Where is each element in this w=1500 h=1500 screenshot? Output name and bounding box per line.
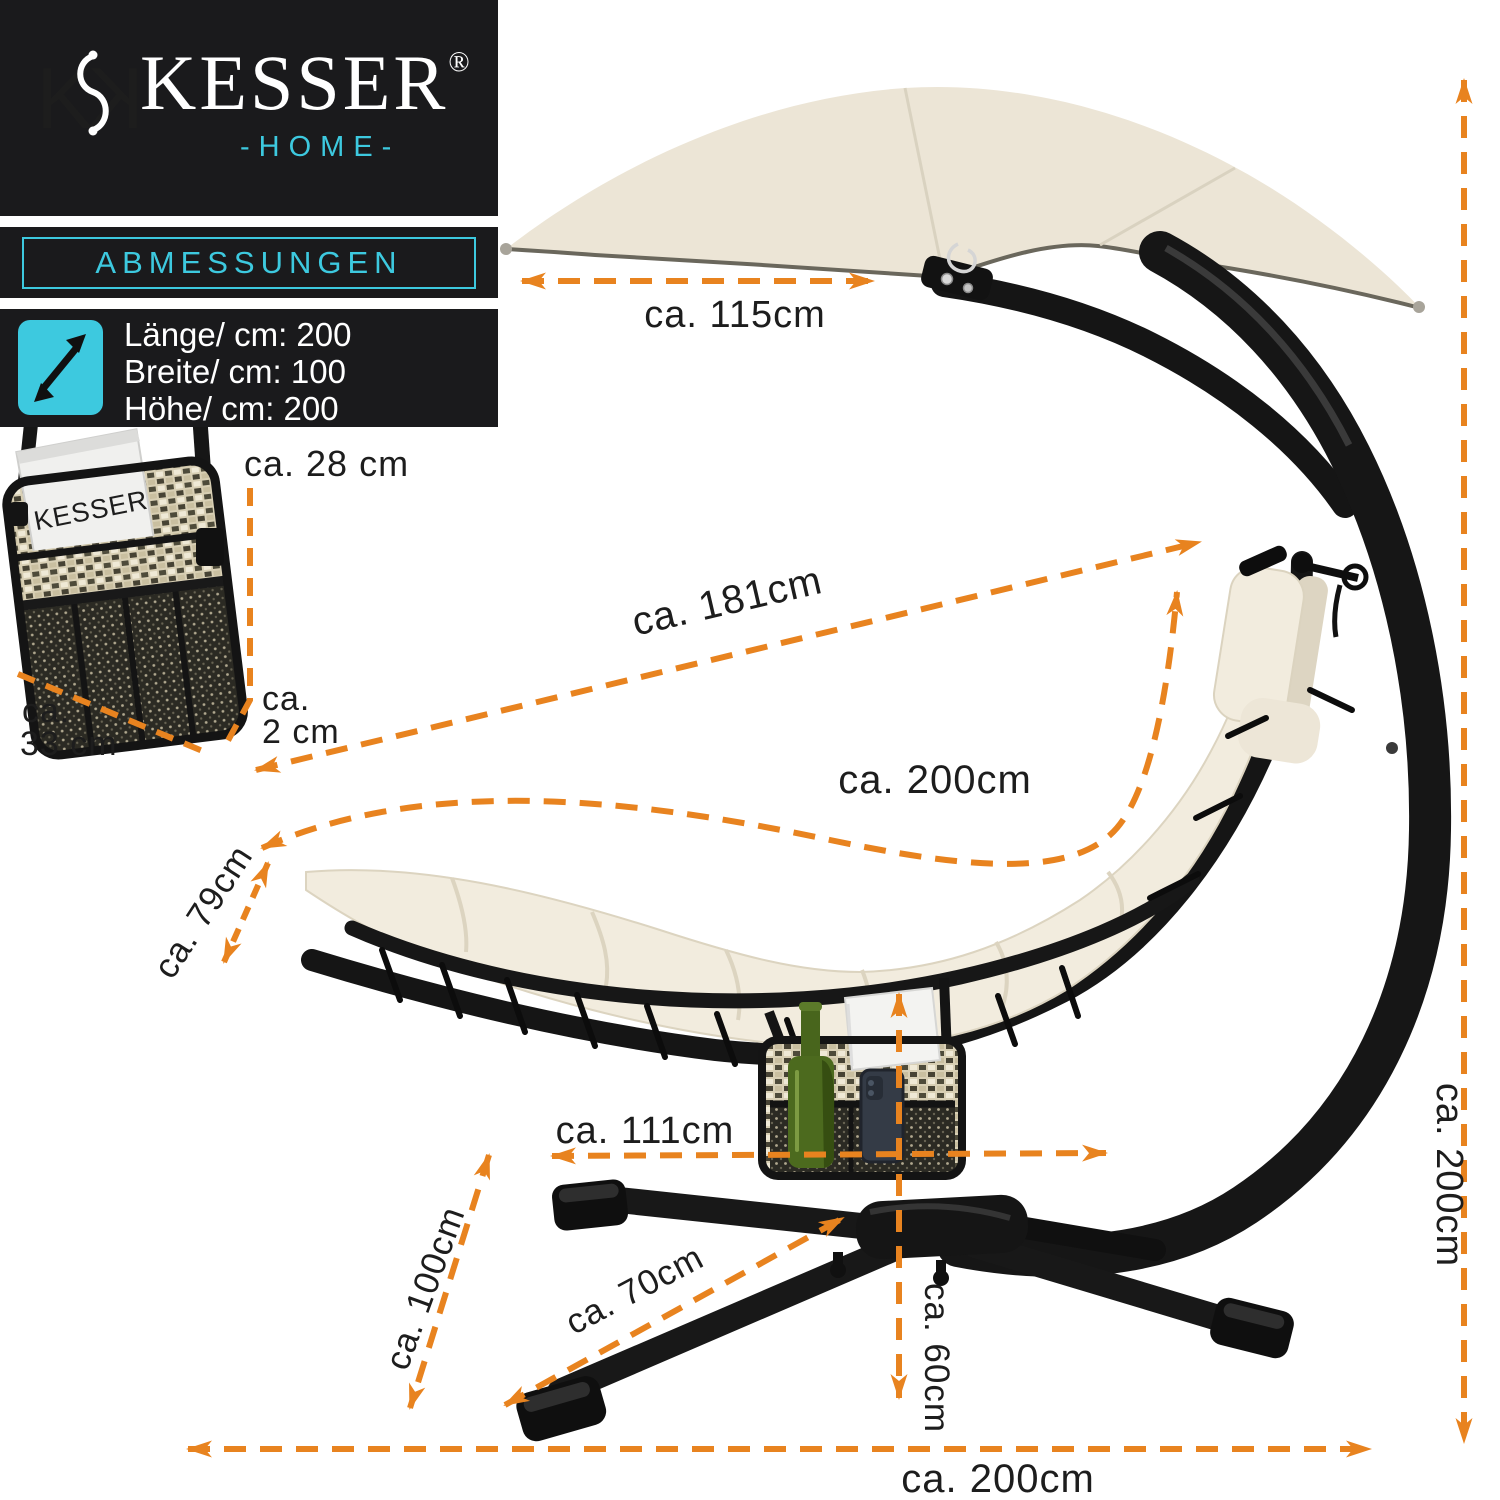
- section-title: ABMESSUNGEN: [22, 237, 476, 289]
- product-dimensions-infographic: { "brand": { "wordmark": "KESSER", "regi…: [0, 0, 1500, 1500]
- spec-length: Länge/ cm: 200: [124, 316, 352, 353]
- dim-pocket-depth-label: 2 cm: [262, 713, 340, 751]
- dim-diagonal-line: [256, 542, 1200, 770]
- canopy-tip-left: [500, 243, 512, 255]
- brand-wordmark: KESSER®: [140, 38, 470, 128]
- spec-lines: Länge/ cm: 200 Breite/ cm: 100 Höhe/ cm:…: [124, 316, 352, 427]
- spec-width: Breite/ cm: 100: [124, 353, 352, 390]
- dim-diagonal-label: ca. 181cm: [628, 558, 826, 644]
- dim-lounger-length-curve: [262, 592, 1177, 864]
- dim-lounger-length-label: ca. 200cm: [838, 758, 1032, 802]
- dim-total-length-label: ca. 200cm: [901, 1457, 1095, 1500]
- side-organizer-clip: [10, 502, 28, 526]
- brand-name-text: KESSER: [140, 39, 448, 126]
- dim-base-depth-label: ca. 111cm: [556, 1110, 735, 1152]
- brand-panel: K K KESSER® -HOME-: [0, 0, 498, 216]
- lounger: [306, 544, 1366, 1070]
- diagonal-resize-arrow-icon: [18, 320, 103, 415]
- dim-total-height-label: ca. 200cm: [1428, 1083, 1470, 1267]
- base-hub: [855, 1194, 1030, 1261]
- canopy-tip-right: [1413, 301, 1425, 313]
- dim-canopy-width-label: ca. 115cm: [644, 294, 825, 336]
- specs-panel: Länge/ cm: 200 Breite/ cm: 100 Höhe/ cm:…: [0, 309, 498, 427]
- frame-bolt: [1386, 742, 1398, 754]
- lounger-cushion: [306, 580, 1285, 1047]
- dim-pocket-width-label: 33 cm: [20, 725, 118, 763]
- spec-height: Höhe/ cm: 200: [124, 390, 352, 427]
- dim-base-diagonal-label: ca. 100cm: [378, 1201, 473, 1375]
- stand-frame: [944, 248, 1430, 1256]
- kesser-monogram-icon: K K: [40, 40, 140, 150]
- side-organizer-buckle: [196, 528, 224, 566]
- organizer-book: [845, 988, 940, 1070]
- section-header-panel: ABMESSUNGEN: [0, 227, 498, 298]
- dim-seat-height-label: ca. 60cm: [917, 1283, 956, 1433]
- registered-mark: ®: [448, 47, 469, 78]
- frame-arc: [958, 252, 1430, 1256]
- dim-pocket-height-label: ca. 28 cm: [244, 443, 409, 484]
- product-illustration: KESSER: [0, 0, 1500, 1500]
- canopy-pole: [944, 284, 1345, 505]
- brand-home-subtitle: -HOME-: [240, 131, 400, 164]
